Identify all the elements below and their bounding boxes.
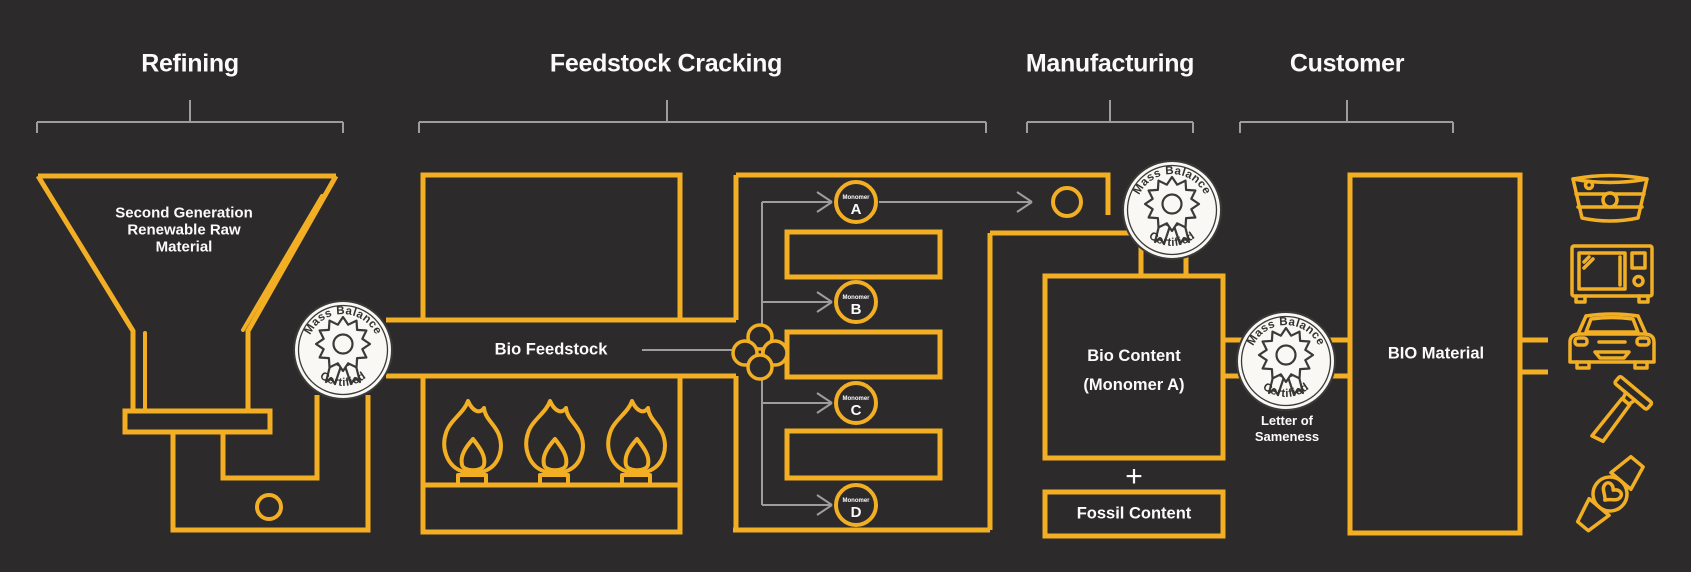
monomer-a-letter: A [851, 201, 862, 218]
bio-feedstock-label: Bio Feedstock [495, 341, 608, 360]
monomer-node-d: Monomer D [836, 485, 876, 525]
bio-content-line2: (Monomer A) [1083, 371, 1184, 400]
column-tray [787, 431, 940, 478]
funnel-base-plate [125, 411, 270, 432]
letter-of-sameness-line2: Sameness [1255, 429, 1319, 445]
section-title-feedstock-cracking: Feedstock Cracking [550, 50, 782, 79]
tub-icon [1573, 176, 1647, 222]
flame-icon [608, 401, 665, 485]
product-icons [1570, 176, 1654, 538]
funnel-label-line1: Second Generation [99, 205, 269, 222]
funnel-label-line3: Material [99, 239, 269, 256]
output-stubs [1520, 340, 1548, 372]
flow-junction-circle [1053, 188, 1081, 216]
arrow-to-monomer-a [762, 192, 832, 212]
arrow-to-monomer-c [762, 393, 832, 413]
section-brackets [37, 100, 1453, 133]
monomer-d-letter: D [851, 504, 862, 521]
bio-content-label: Bio Content (Monomer A) [1083, 342, 1184, 400]
monomer-node-a: Monomer A [836, 182, 876, 222]
customer-bracket [1240, 100, 1453, 133]
monomer-b-letter: B [851, 301, 862, 318]
diagram-artwork: Monomer A Monomer B Monomer C Monomer D [0, 0, 1691, 572]
microwave-icon [1572, 246, 1652, 302]
section-title-refining: Refining [141, 50, 239, 79]
monomer-c-letter: C [851, 402, 862, 419]
process-flow-diagram: Monomer A Monomer B Monomer C Monomer D [0, 0, 1691, 572]
feedstock-cracking-bracket [419, 100, 986, 133]
letter-of-sameness-line1: Letter of [1255, 413, 1319, 429]
funnel-label: Second Generation Renewable Raw Material [99, 205, 269, 256]
section-title-manufacturing: Manufacturing [1026, 50, 1194, 79]
outlet-pipe-inner [223, 395, 317, 478]
fossil-content-label: Fossil Content [1077, 505, 1192, 524]
smartwatch-icon [1570, 451, 1650, 537]
column-tray [787, 232, 940, 277]
flame-icon [444, 401, 501, 485]
arrow-to-monomer-b [762, 292, 832, 312]
letter-of-sameness-label: Letter of Sameness [1255, 413, 1319, 445]
bio-content-line1: Bio Content [1083, 342, 1184, 371]
razor-icon [1579, 376, 1652, 452]
arrow-to-monomer-d [762, 495, 832, 515]
transfer-pipe-to-manufacturing [736, 175, 1186, 276]
section-title-customer: Customer [1290, 50, 1404, 79]
plus-sign: + [1125, 460, 1143, 494]
distribution-arrows [642, 192, 1032, 515]
arrow-monomer-a-out [879, 192, 1032, 212]
funnel-label-line2: Renewable Raw [99, 222, 269, 239]
bio-material-label: BIO Material [1388, 345, 1484, 364]
column-tray [787, 332, 940, 377]
refining-bracket [37, 100, 343, 133]
flame-icon [526, 401, 583, 485]
monomer-node-c: Monomer C [836, 383, 876, 423]
cracker-top-box [423, 175, 680, 320]
monomer-node-b: Monomer B [836, 282, 876, 322]
molecule-icon [733, 325, 787, 379]
manufacturing-bracket [1027, 100, 1193, 133]
pipe-droplet-circle [257, 495, 281, 519]
car-icon [1570, 314, 1654, 368]
